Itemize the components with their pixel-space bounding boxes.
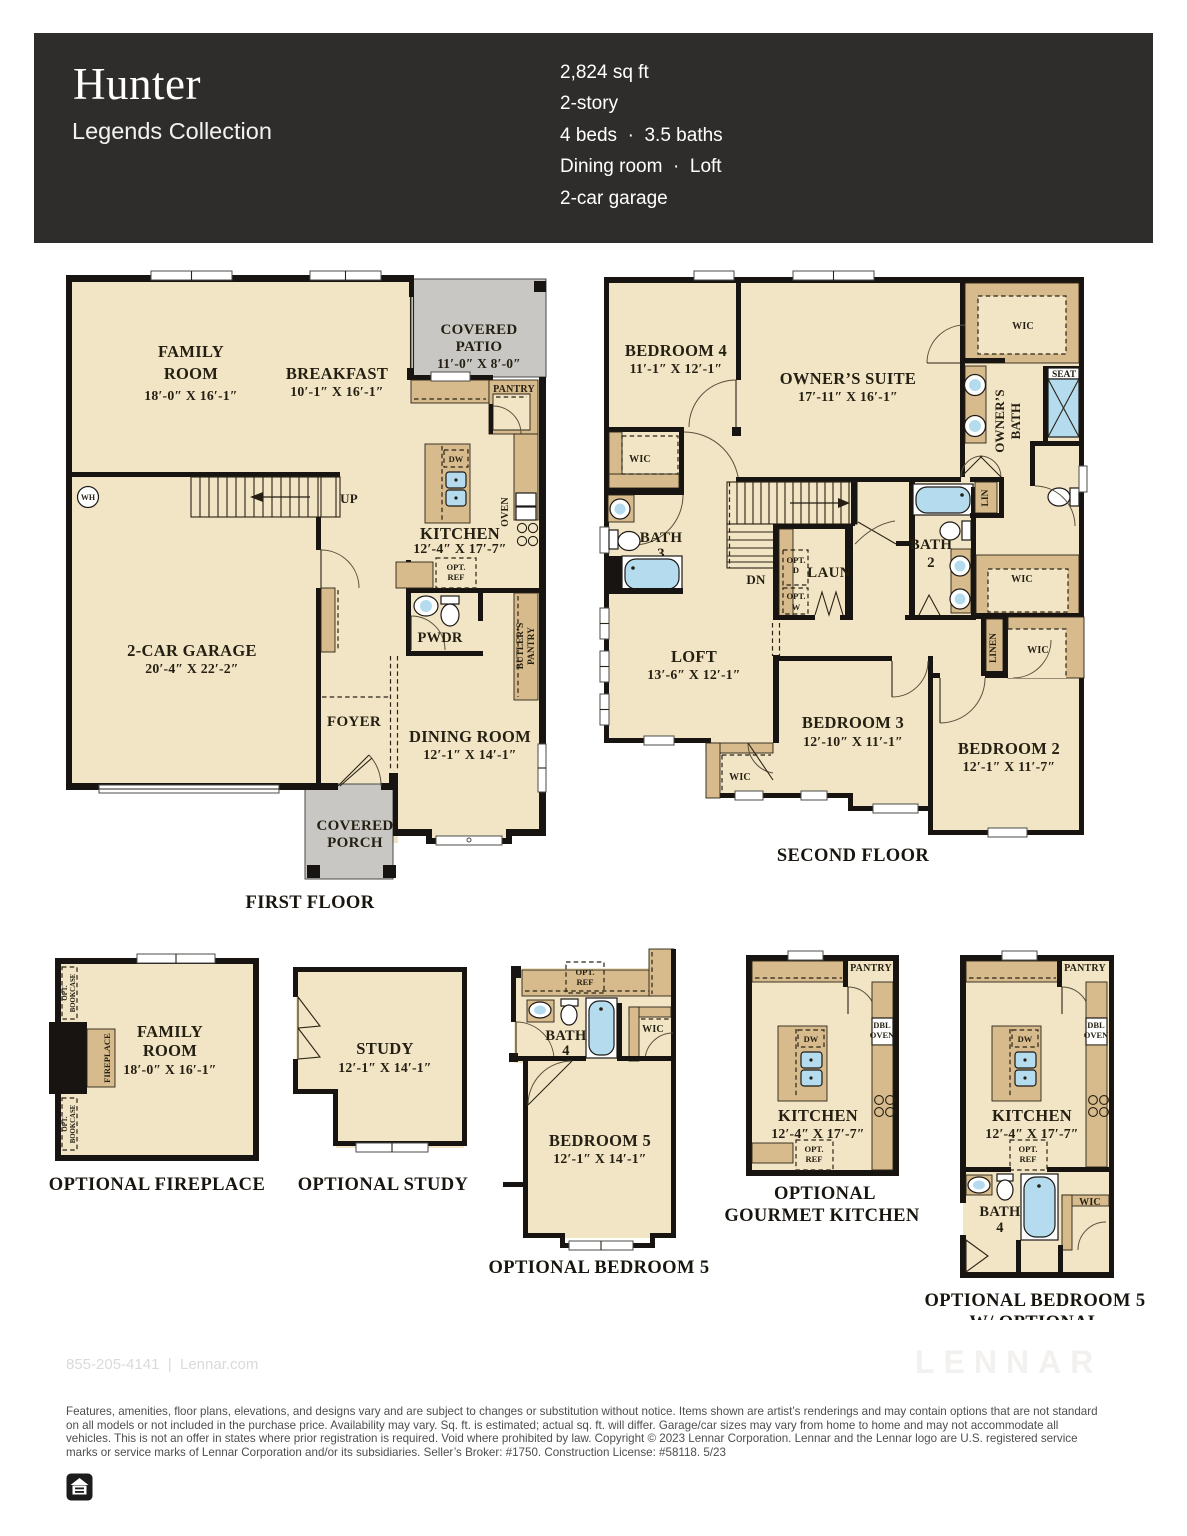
svg-text:LINEN: LINEN bbox=[989, 633, 999, 663]
svg-text:FAMILY: FAMILY bbox=[137, 1022, 203, 1041]
svg-text:LIN: LIN bbox=[981, 489, 991, 506]
svg-text:OPTIONAL: OPTIONAL bbox=[774, 1184, 876, 1204]
svg-text:W: W bbox=[792, 602, 801, 612]
svg-text:OVEN: OVEN bbox=[870, 1030, 895, 1040]
svg-text:DW: DW bbox=[804, 1034, 819, 1044]
svg-text:12′-10″ X 11′-1″: 12′-10″ X 11′-1″ bbox=[803, 734, 903, 749]
svg-text:BATH: BATH bbox=[640, 530, 683, 546]
svg-text:4: 4 bbox=[562, 1043, 570, 1059]
svg-text:18′-0″ X 16′-1″: 18′-0″ X 16′-1″ bbox=[123, 1062, 216, 1077]
svg-text:FOYER: FOYER bbox=[327, 714, 381, 730]
svg-text:FIREPLACE: FIREPLACE bbox=[102, 1033, 112, 1083]
svg-text:12′-4″ X 17′-7″: 12′-4″ X 17′-7″ bbox=[413, 541, 506, 556]
svg-text:WIC: WIC bbox=[642, 1024, 664, 1035]
svg-text:4: 4 bbox=[996, 1220, 1004, 1236]
svg-text:OWNER’S: OWNER’S bbox=[992, 389, 1007, 453]
svg-text:WIC: WIC bbox=[1079, 1197, 1101, 1208]
svg-text:BEDROOM 4: BEDROOM 4 bbox=[625, 341, 727, 360]
svg-text:OPT.: OPT. bbox=[1019, 1144, 1038, 1154]
svg-text:BOOKCASE: BOOKCASE bbox=[70, 1104, 77, 1143]
svg-text:11′-0″ X 8′-0″: 11′-0″ X 8′-0″ bbox=[437, 356, 521, 371]
svg-text:OPT.: OPT. bbox=[447, 562, 466, 572]
svg-text:10′-1″ X 16′-1″: 10′-1″ X 16′-1″ bbox=[290, 384, 383, 399]
svg-text:PWDR: PWDR bbox=[417, 630, 462, 646]
svg-text:DINING ROOM: DINING ROOM bbox=[409, 727, 531, 746]
svg-text:17′-11″ X 16′-1″: 17′-11″ X 16′-1″ bbox=[798, 389, 898, 404]
svg-text:WIC: WIC bbox=[1012, 321, 1034, 332]
svg-text:DW: DW bbox=[1018, 1034, 1033, 1044]
svg-text:20′-4″ X 22′-2″: 20′-4″ X 22′-2″ bbox=[145, 661, 238, 676]
svg-text:REF: REF bbox=[448, 572, 465, 582]
svg-text:COVERED: COVERED bbox=[316, 818, 393, 834]
svg-text:BEDROOM 3: BEDROOM 3 bbox=[802, 713, 904, 732]
svg-text:OPTIONAL STUDY: OPTIONAL STUDY bbox=[298, 1175, 469, 1195]
svg-text:WH: WH bbox=[81, 493, 96, 502]
svg-text:OPT.: OPT. bbox=[787, 555, 806, 565]
svg-text:ROOM: ROOM bbox=[143, 1041, 197, 1060]
svg-text:2: 2 bbox=[927, 555, 935, 571]
svg-text:WIC: WIC bbox=[729, 772, 751, 783]
svg-text:FAMILY: FAMILY bbox=[158, 342, 224, 361]
svg-text:PANTRY: PANTRY bbox=[493, 384, 535, 395]
svg-text:KITCHEN: KITCHEN bbox=[778, 1106, 858, 1125]
svg-text:OPTIONAL BEDROOM 5: OPTIONAL BEDROOM 5 bbox=[489, 1258, 710, 1278]
svg-text:REF: REF bbox=[577, 977, 594, 987]
svg-text:OPT.: OPT. bbox=[576, 967, 595, 977]
svg-text:D: D bbox=[793, 565, 799, 575]
svg-text:DN: DN bbox=[746, 572, 766, 587]
svg-text:BATH: BATH bbox=[979, 1204, 1021, 1220]
svg-text:GOURMET KITCHEN: GOURMET KITCHEN bbox=[724, 1206, 920, 1226]
svg-text:OPTIONAL FIREPLACE: OPTIONAL FIREPLACE bbox=[49, 1175, 265, 1195]
svg-text:OVEN: OVEN bbox=[1084, 1030, 1109, 1040]
svg-text:LOFT: LOFT bbox=[671, 647, 717, 666]
svg-text:UP: UP bbox=[340, 491, 358, 506]
svg-text:ROOM: ROOM bbox=[164, 364, 218, 383]
svg-text:OWNER’S SUITE: OWNER’S SUITE bbox=[780, 369, 916, 388]
svg-text:OPT.: OPT. bbox=[62, 985, 69, 1000]
svg-text:DW: DW bbox=[449, 454, 464, 464]
svg-text:DBL: DBL bbox=[1087, 1020, 1105, 1030]
svg-text:BEDROOM 2: BEDROOM 2 bbox=[958, 739, 1060, 758]
svg-text:13′-6″ X 12′-1″: 13′-6″ X 12′-1″ bbox=[647, 667, 740, 682]
svg-text:REF: REF bbox=[806, 1154, 823, 1164]
svg-text:BUTLER’S: BUTLER’S bbox=[516, 623, 526, 670]
svg-text:WIC: WIC bbox=[1011, 574, 1033, 585]
svg-text:12′-4″ X 17′-7″: 12′-4″ X 17′-7″ bbox=[985, 1126, 1078, 1141]
svg-text:PATIO: PATIO bbox=[456, 339, 503, 355]
svg-text:BATH: BATH bbox=[910, 537, 953, 553]
svg-text:DBL: DBL bbox=[873, 1020, 891, 1030]
svg-text:STUDY: STUDY bbox=[356, 1039, 413, 1058]
svg-text:BATH: BATH bbox=[545, 1028, 587, 1044]
svg-text:12′-1″ X 11′-7″: 12′-1″ X 11′-7″ bbox=[963, 759, 1056, 774]
svg-text:OPTIONAL BEDROOM 5: OPTIONAL BEDROOM 5 bbox=[925, 1291, 1146, 1311]
svg-text:PANTRY: PANTRY bbox=[527, 627, 537, 665]
svg-text:12′-4″ X 17′-7″: 12′-4″ X 17′-7″ bbox=[771, 1126, 864, 1141]
svg-text:12′-1″ X 14′-1″: 12′-1″ X 14′-1″ bbox=[338, 1060, 431, 1075]
svg-text:18′-0″ X 16′-1″: 18′-0″ X 16′-1″ bbox=[144, 388, 237, 403]
svg-text:OPT.: OPT. bbox=[805, 1144, 824, 1154]
svg-text:REF: REF bbox=[1020, 1154, 1037, 1164]
svg-text:OPT.: OPT. bbox=[62, 1116, 69, 1131]
svg-text:OVEN: OVEN bbox=[500, 497, 511, 527]
svg-text:COVERED: COVERED bbox=[440, 322, 517, 338]
svg-text:KITCHEN: KITCHEN bbox=[992, 1106, 1072, 1125]
svg-text:PANTRY: PANTRY bbox=[850, 963, 892, 974]
svg-text:SECOND FLOOR: SECOND FLOOR bbox=[777, 846, 930, 866]
svg-text:OPT.: OPT. bbox=[787, 591, 806, 601]
svg-text:12′-1″ X 14′-1″: 12′-1″ X 14′-1″ bbox=[553, 1151, 646, 1166]
svg-text:BATH: BATH bbox=[1008, 403, 1023, 440]
svg-text:2-CAR GARAGE: 2-CAR GARAGE bbox=[127, 641, 257, 660]
svg-text:WIC: WIC bbox=[1027, 645, 1049, 656]
svg-text:BOOKCASE: BOOKCASE bbox=[70, 973, 77, 1012]
svg-text:PANTRY: PANTRY bbox=[1064, 963, 1106, 974]
svg-text:PORCH: PORCH bbox=[327, 835, 383, 851]
svg-text:11′-1″ X 12′-1″: 11′-1″ X 12′-1″ bbox=[630, 361, 723, 376]
svg-text:12′-1″ X 14′-1″: 12′-1″ X 14′-1″ bbox=[423, 747, 516, 762]
svg-text:WIC: WIC bbox=[629, 454, 651, 465]
svg-text:LAUN: LAUN bbox=[807, 565, 851, 581]
svg-text:FIRST FLOOR: FIRST FLOOR bbox=[246, 893, 375, 913]
svg-text:BREAKFAST: BREAKFAST bbox=[286, 364, 388, 383]
svg-text:BEDROOM 5: BEDROOM 5 bbox=[549, 1131, 651, 1150]
